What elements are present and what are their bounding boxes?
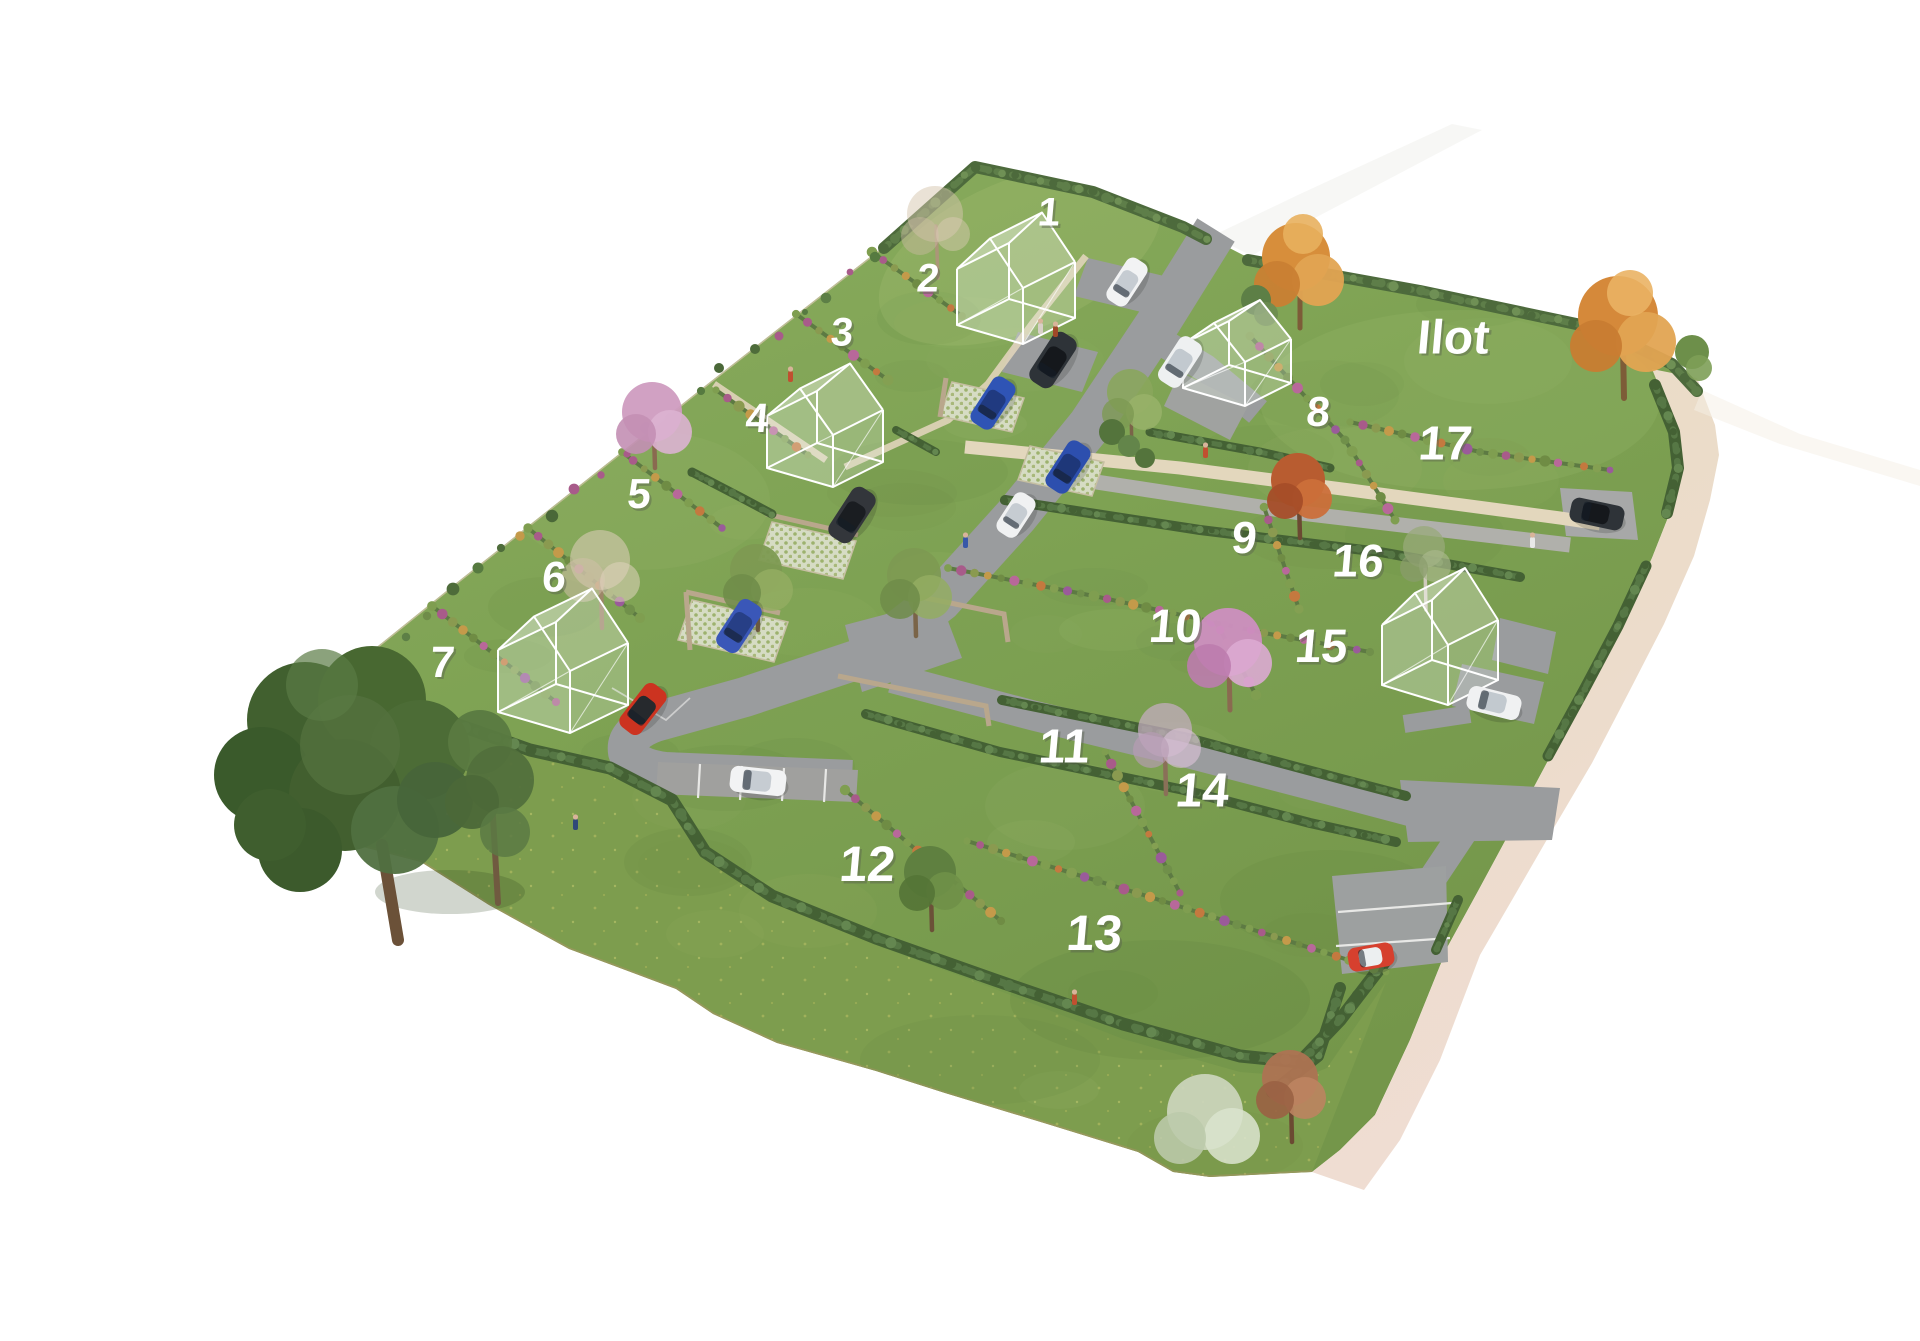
svg-text:Ilot: Ilot [1415, 310, 1492, 364]
svg-text:4: 4 [744, 395, 771, 441]
svg-text:14: 14 [1173, 763, 1231, 817]
svg-text:15: 15 [1293, 619, 1350, 672]
svg-text:13: 13 [1064, 905, 1124, 961]
svg-text:16: 16 [1331, 535, 1387, 587]
svg-text:17: 17 [1416, 416, 1474, 470]
svg-text:9: 9 [1230, 512, 1259, 563]
svg-text:10: 10 [1147, 599, 1204, 652]
svg-text:11: 11 [1037, 719, 1092, 773]
svg-text:7: 7 [428, 638, 457, 687]
svg-text:1: 1 [1036, 190, 1062, 234]
svg-text:12: 12 [837, 836, 897, 892]
svg-text:8: 8 [1305, 388, 1332, 435]
svg-text:5: 5 [626, 470, 653, 517]
svg-text:2: 2 [915, 256, 941, 300]
svg-text:6: 6 [540, 554, 568, 602]
svg-text:3: 3 [829, 310, 855, 354]
